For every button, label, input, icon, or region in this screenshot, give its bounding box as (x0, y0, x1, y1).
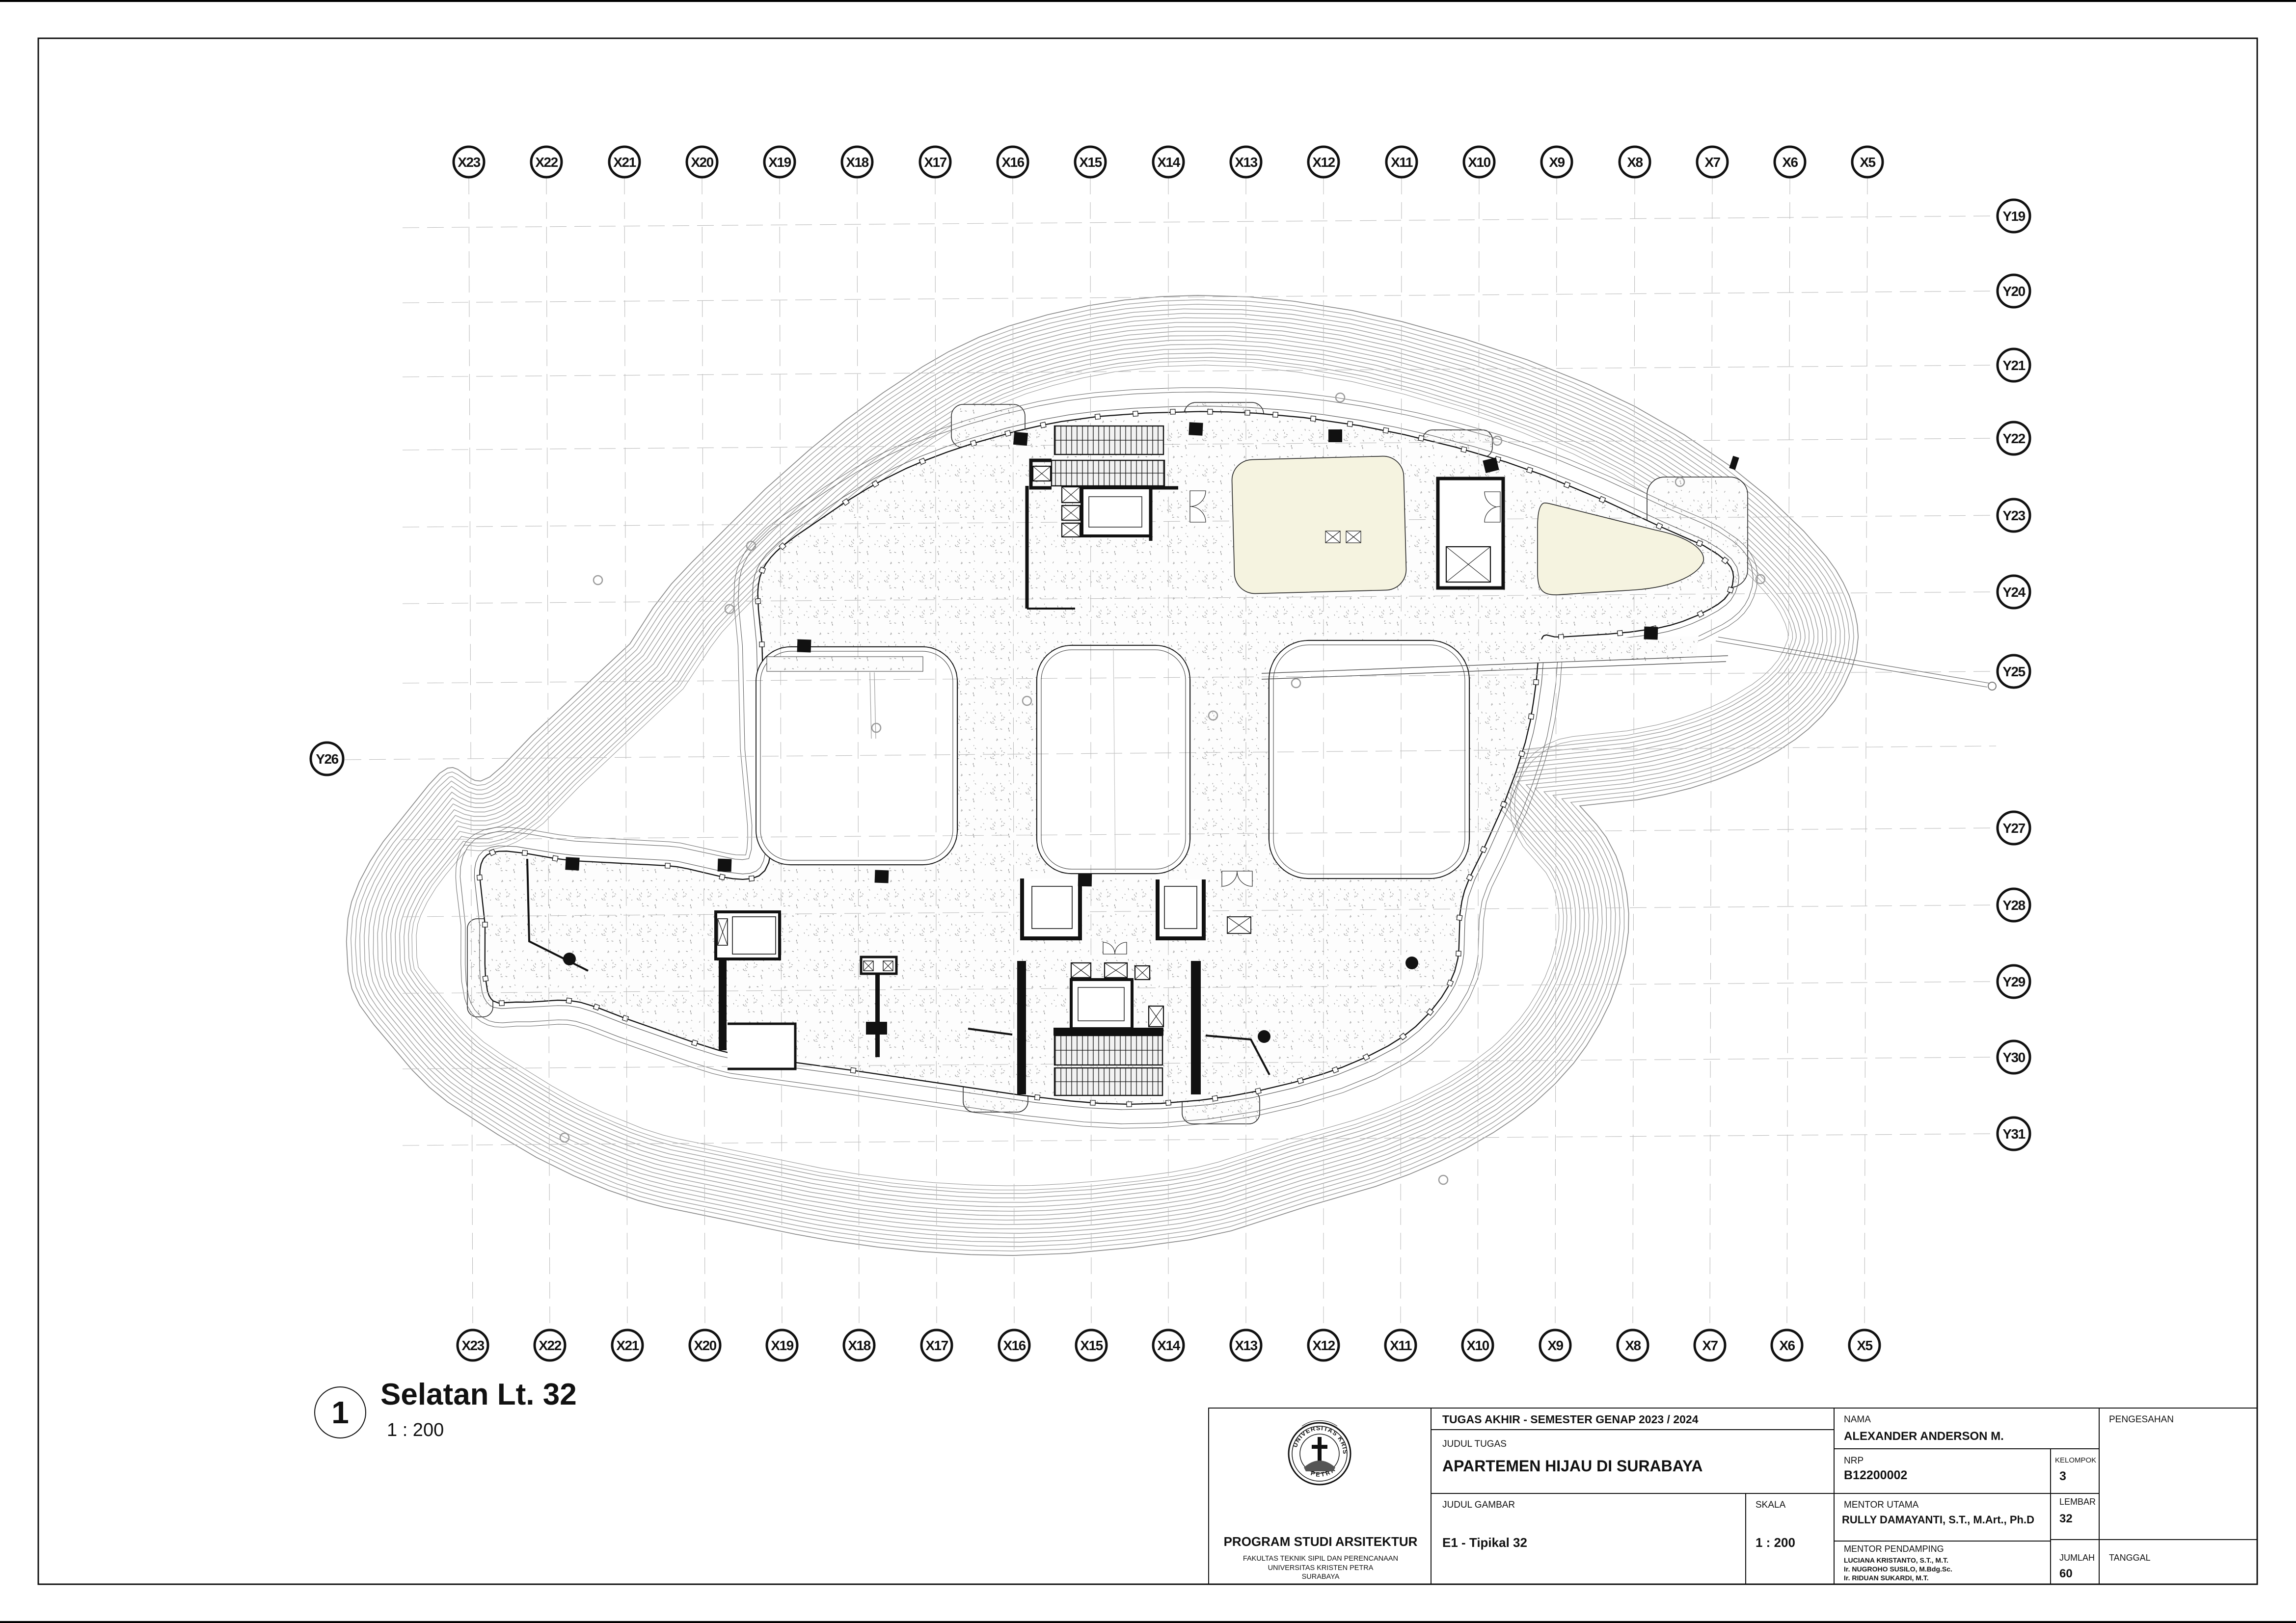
svg-text:Y20: Y20 (2002, 284, 2025, 299)
svg-text:X14: X14 (1157, 155, 1180, 170)
svg-text:X17: X17 (924, 155, 946, 170)
svg-text:RULLY DAMAYANTI, S.T., M.Art.,: RULLY DAMAYANTI, S.T., M.Art., Ph.D (1842, 1514, 2034, 1526)
svg-text:X13: X13 (1235, 1338, 1257, 1353)
svg-text:PENGESAHAN: PENGESAHAN (2109, 1414, 2174, 1425)
svg-text:X5: X5 (1860, 155, 1875, 170)
svg-text:X22: X22 (539, 1338, 561, 1353)
svg-text:X5: X5 (1857, 1338, 1872, 1353)
svg-text:X11: X11 (1391, 155, 1413, 170)
svg-text:B12200002: B12200002 (1844, 1468, 1907, 1482)
svg-text:X6: X6 (1782, 155, 1798, 170)
svg-text:X14: X14 (1157, 1338, 1180, 1353)
svg-text:Ir. RIDUAN SUKARDI, M.T.: Ir. RIDUAN SUKARDI, M.T. (1844, 1574, 1929, 1582)
svg-text:JUMLAH: JUMLAH (2059, 1553, 2095, 1563)
svg-text:TUGAS AKHIR - SEMESTER GENAP 2: TUGAS AKHIR - SEMESTER GENAP 2023 / 2024 (1442, 1413, 1699, 1426)
svg-text:Y23: Y23 (2002, 508, 2025, 523)
svg-text:APARTEMEN HIJAU DI SURABAYA: APARTEMEN HIJAU DI SURABAYA (1442, 1457, 1702, 1475)
svg-text:NRP: NRP (1844, 1456, 1864, 1466)
svg-text:1 : 200: 1 : 200 (387, 1420, 444, 1440)
svg-text:PROGRAM STUDI ARSITEKTUR: PROGRAM STUDI ARSITEKTUR (1224, 1534, 1418, 1549)
svg-text:32: 32 (2059, 1512, 2073, 1525)
svg-text:X15: X15 (1079, 155, 1102, 170)
svg-text:Y25: Y25 (2002, 664, 2025, 679)
svg-text:TANGGAL: TANGGAL (2109, 1553, 2151, 1563)
svg-text:Selatan Lt. 32: Selatan Lt. 32 (380, 1378, 577, 1411)
svg-text:Y29: Y29 (2002, 974, 2025, 989)
svg-text:60: 60 (2059, 1567, 2073, 1580)
svg-text:SURABAYA: SURABAYA (1302, 1573, 1340, 1581)
svg-text:X20: X20 (691, 155, 713, 170)
svg-text:Y22: Y22 (2002, 431, 2025, 446)
svg-text:X7: X7 (1704, 155, 1720, 170)
svg-text:X16: X16 (1001, 155, 1024, 170)
svg-text:X18: X18 (846, 155, 868, 170)
svg-text:LUCIANA KRISTANTO, S.T., M.T.: LUCIANA KRISTANTO, S.T., M.T. (1844, 1556, 1948, 1564)
svg-text:UNIVERSITAS KRISTEN PETRA: UNIVERSITAS KRISTEN PETRA (1268, 1564, 1374, 1572)
svg-text:ALEXANDER ANDERSON M.: ALEXANDER ANDERSON M. (1844, 1430, 2004, 1443)
svg-text:X16: X16 (1003, 1338, 1026, 1353)
svg-text:Y26: Y26 (316, 751, 338, 767)
svg-text:Y21: Y21 (2002, 358, 2025, 373)
svg-text:X13: X13 (1235, 155, 1257, 170)
svg-text:X8: X8 (1627, 155, 1643, 170)
svg-text:X7: X7 (1702, 1338, 1718, 1353)
svg-text:X22: X22 (535, 155, 558, 170)
svg-text:X19: X19 (771, 1338, 793, 1353)
svg-text:X8: X8 (1625, 1338, 1641, 1353)
svg-text:X19: X19 (768, 155, 791, 170)
svg-text:1: 1 (331, 1395, 349, 1430)
svg-text:MENTOR PENDAMPING: MENTOR PENDAMPING (1844, 1544, 1944, 1554)
svg-text:X23: X23 (458, 155, 480, 170)
svg-text:3: 3 (2059, 1469, 2066, 1483)
svg-text:X9: X9 (1547, 1338, 1563, 1353)
svg-text:NAMA: NAMA (1844, 1414, 1871, 1425)
svg-text:Y24: Y24 (2002, 585, 2026, 600)
svg-text:Y27: Y27 (2002, 821, 2025, 836)
svg-text:Ir. NUGROHO SUSILO, M.Bdg.Sc.: Ir. NUGROHO SUSILO, M.Bdg.Sc. (1844, 1565, 1952, 1573)
svg-text:Y28: Y28 (2002, 898, 2025, 913)
svg-text:X12: X12 (1312, 1338, 1335, 1353)
svg-text:X12: X12 (1312, 155, 1335, 170)
svg-text:X21: X21 (616, 1338, 639, 1353)
svg-text:X15: X15 (1080, 1338, 1103, 1353)
svg-text:E1 - Tipikal 32: E1 - Tipikal 32 (1442, 1535, 1527, 1550)
svg-text:X18: X18 (848, 1338, 870, 1353)
svg-text:X10: X10 (1466, 1338, 1489, 1353)
svg-text:Y31: Y31 (2002, 1126, 2025, 1142)
svg-text:KELOMPOK: KELOMPOK (2055, 1456, 2096, 1464)
svg-text:X11: X11 (1390, 1338, 1412, 1353)
svg-text:X23: X23 (461, 1338, 484, 1353)
svg-text:X17: X17 (925, 1338, 948, 1353)
svg-text:FAKULTAS TEKNIK SIPIL DAN PERE: FAKULTAS TEKNIK SIPIL DAN PERENCANAAN (1243, 1555, 1398, 1563)
svg-text:Y30: Y30 (2002, 1050, 2025, 1065)
svg-text:MENTOR UTAMA: MENTOR UTAMA (1844, 1500, 1919, 1510)
svg-text:X20: X20 (694, 1338, 716, 1353)
svg-text:X21: X21 (613, 155, 636, 170)
svg-text:X6: X6 (1779, 1338, 1795, 1353)
svg-text:1 : 200: 1 : 200 (1756, 1535, 1795, 1550)
svg-text:SKALA: SKALA (1756, 1500, 1786, 1510)
svg-text:JUDUL TUGAS: JUDUL TUGAS (1442, 1439, 1507, 1449)
svg-text:LEMBAR: LEMBAR (2059, 1497, 2096, 1507)
svg-text:X9: X9 (1549, 155, 1565, 170)
svg-text:Y19: Y19 (2002, 209, 2025, 224)
svg-text:X10: X10 (1468, 155, 1490, 170)
svg-text:JUDUL GAMBAR: JUDUL GAMBAR (1442, 1500, 1515, 1510)
